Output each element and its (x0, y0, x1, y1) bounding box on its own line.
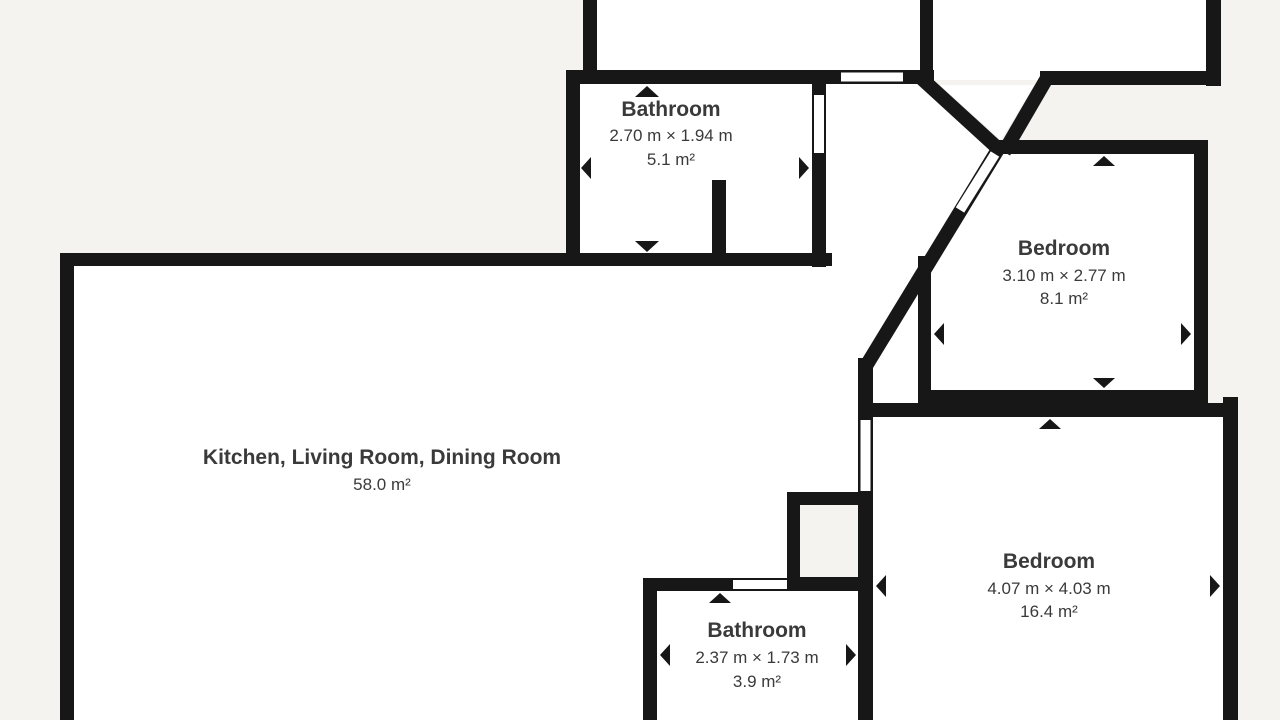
room-label-area: 16.4 m² (1020, 602, 1078, 621)
floor-plan: Bathroom 2.70 m × 1.94 m 5.1 m² Bedroom … (0, 0, 1280, 720)
room-label-name: Bedroom (1018, 237, 1110, 260)
door-opening (861, 420, 871, 491)
wall-segment (643, 578, 657, 720)
wall-segment (1194, 140, 1208, 404)
room-label-area: 58.0 m² (353, 475, 411, 494)
wall-segment (60, 253, 832, 266)
room-floor-top-middle (590, 0, 927, 78)
wall-segment (918, 390, 1208, 404)
wall-segment (60, 253, 74, 720)
wall-segment (1223, 397, 1238, 720)
floor-plan-page: Bathroom 2.70 m × 1.94 m 5.1 m² Bedroom … (0, 0, 1280, 720)
wall-segment (712, 180, 726, 257)
room-label-name: Bathroom (707, 619, 806, 642)
wall-segment (566, 70, 580, 266)
shaft-interior (800, 505, 858, 577)
room-label-name: Kitchen, Living Room, Dining Room (203, 446, 561, 469)
wall-segment (997, 140, 1208, 154)
wall-segment (920, 0, 933, 82)
room-floor-top-right (926, 0, 1214, 80)
room-label-dimensions: 2.37 m × 1.73 m (695, 648, 818, 667)
room-label-dimensions: 4.07 m × 4.03 m (987, 579, 1110, 598)
room-label-dimensions: 3.10 m × 2.77 m (1002, 266, 1125, 285)
room-label-name: Bedroom (1003, 550, 1095, 573)
room-label-name: Bathroom (621, 98, 720, 121)
room-label-area: 5.1 m² (647, 150, 696, 169)
room-label-area: 8.1 m² (1040, 289, 1089, 308)
room-label-area: 3.9 m² (733, 672, 782, 691)
wall-segment (583, 0, 597, 73)
door-opening (814, 95, 824, 153)
wall-segment (1040, 71, 1221, 85)
wall-segment (860, 403, 1237, 417)
door-opening (733, 580, 787, 589)
door-opening (841, 73, 903, 82)
room-label-dimensions: 2.70 m × 1.94 m (609, 126, 732, 145)
